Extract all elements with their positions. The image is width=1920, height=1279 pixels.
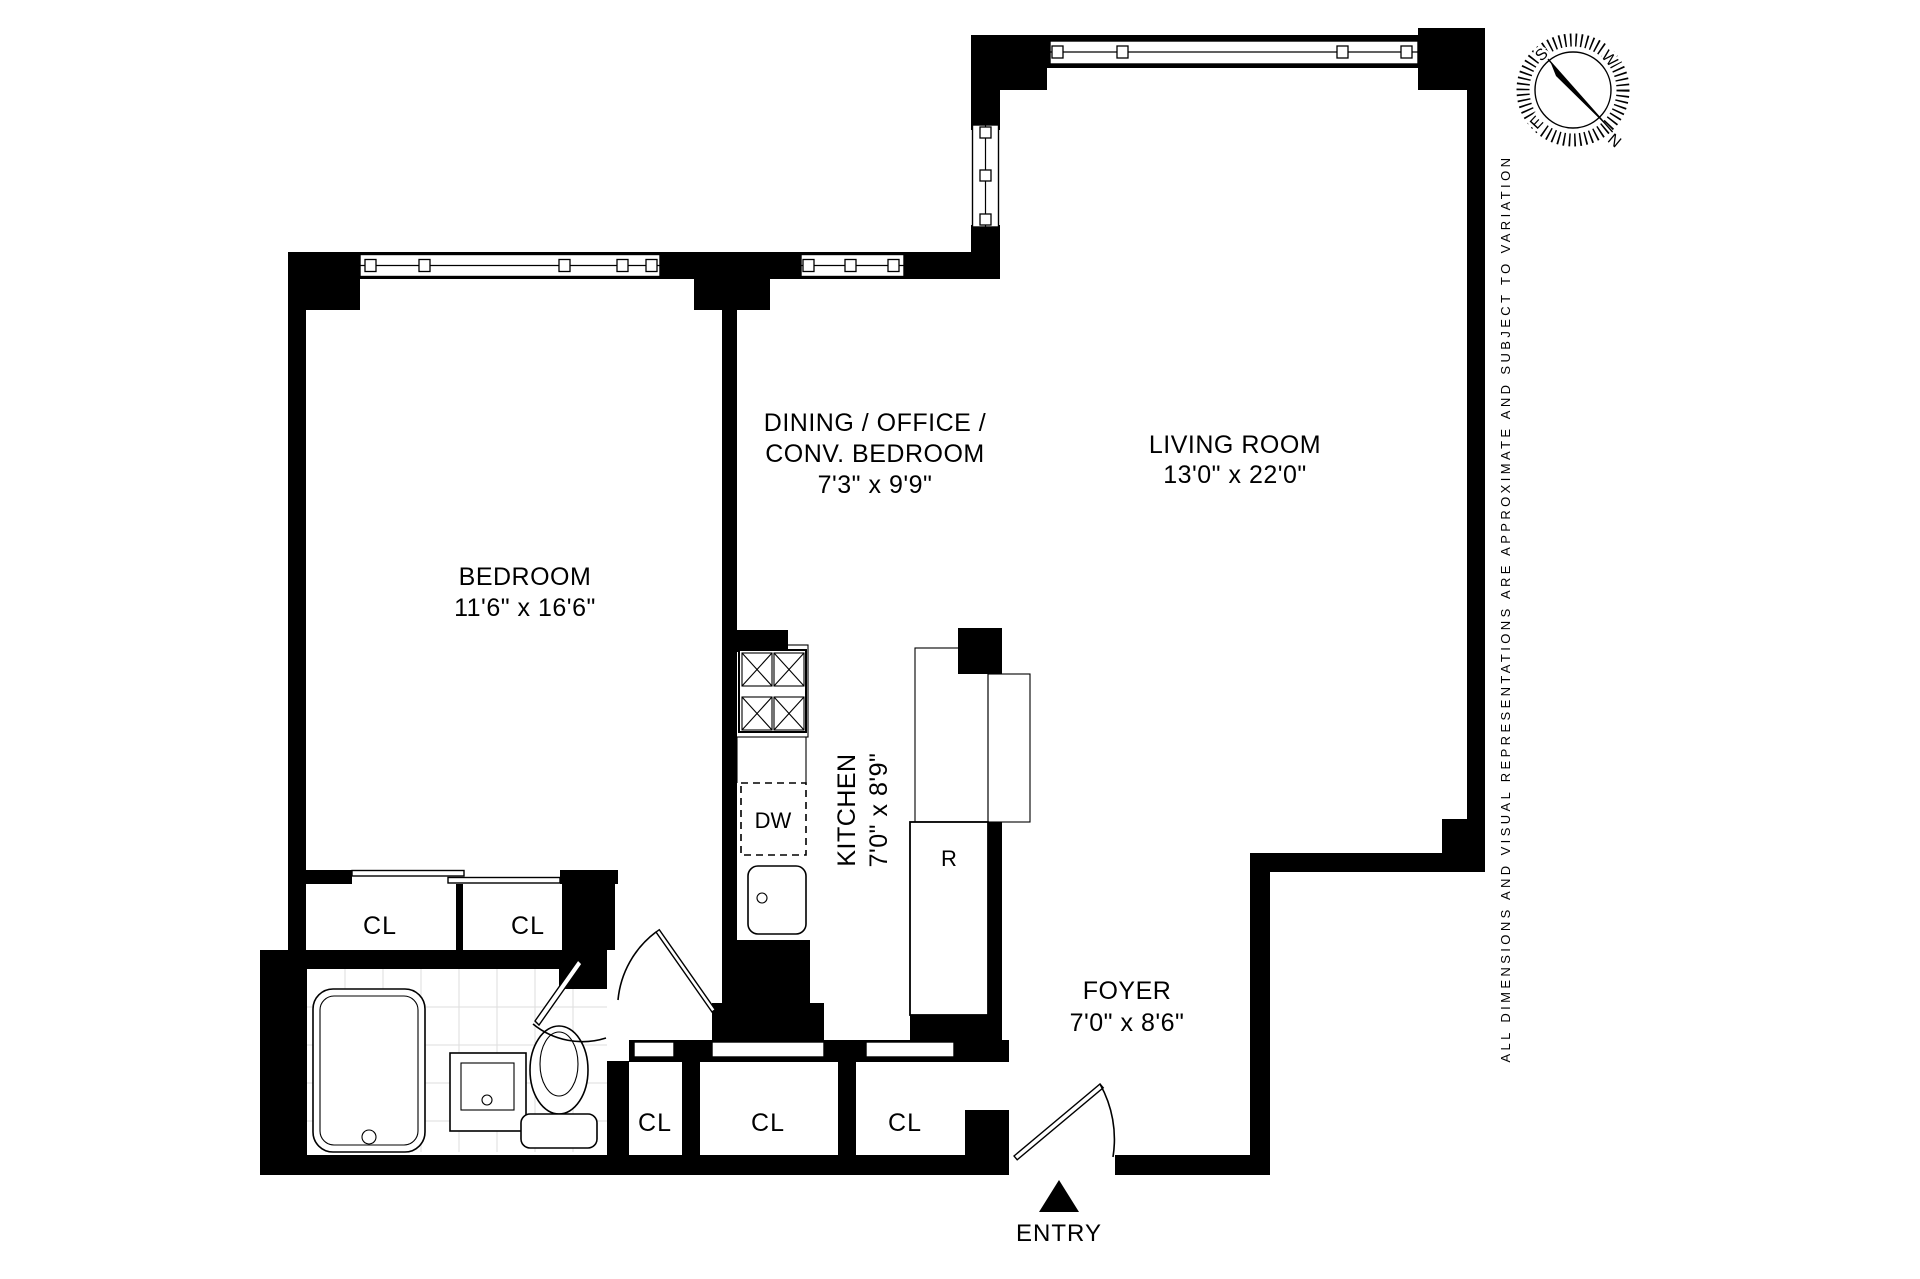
closet-door-slab bbox=[712, 1042, 824, 1057]
closet-door-slab bbox=[866, 1042, 954, 1057]
svg-text:11'6" x 16'6": 11'6" x 16'6" bbox=[454, 594, 596, 622]
closet-label: CL bbox=[511, 912, 545, 940]
svg-text:DINING / OFFICE /: DINING / OFFICE / bbox=[764, 409, 986, 437]
svg-text:13'0" x 22'0": 13'0" x 22'0" bbox=[1163, 461, 1307, 489]
closet-label: CL bbox=[638, 1109, 672, 1137]
living-room-window bbox=[1050, 41, 1418, 64]
svg-text:7'0" x 8'9": 7'0" x 8'9" bbox=[865, 753, 893, 868]
dishwasher-label: DW bbox=[755, 808, 792, 833]
svg-text:CONV. BEDROOM: CONV. BEDROOM bbox=[765, 440, 985, 468]
svg-text:KITCHEN: KITCHEN bbox=[833, 753, 861, 866]
stove bbox=[735, 645, 808, 737]
floor-plan: DW R bbox=[0, 0, 1920, 1279]
closet-label: CL bbox=[363, 912, 397, 940]
svg-text:LIVING ROOM: LIVING ROOM bbox=[1149, 431, 1321, 459]
refrigerator-label: R bbox=[941, 846, 957, 871]
entry-label: ENTRY bbox=[1016, 1220, 1102, 1247]
bathtub bbox=[313, 989, 425, 1152]
svg-text:FOYER: FOYER bbox=[1083, 977, 1172, 1005]
living-room-side-window bbox=[973, 125, 999, 227]
sliding-door-rail bbox=[352, 871, 464, 877]
dishwasher: DW bbox=[741, 783, 806, 855]
closet-label: CL bbox=[888, 1109, 922, 1137]
sliding-door-rail bbox=[448, 878, 560, 884]
kitchen-sink bbox=[748, 866, 806, 934]
svg-text:7'0" x 8'6": 7'0" x 8'6" bbox=[1070, 1009, 1185, 1037]
dining-window bbox=[801, 255, 904, 277]
closet-door-slab bbox=[634, 1042, 674, 1057]
svg-text:BEDROOM: BEDROOM bbox=[459, 563, 592, 591]
closet-label: CL bbox=[751, 1109, 785, 1137]
svg-text:7'3" x 9'9": 7'3" x 9'9" bbox=[818, 471, 933, 499]
bedroom-window bbox=[360, 255, 660, 277]
bathroom-sink bbox=[450, 1053, 526, 1131]
refrigerator: R bbox=[910, 822, 988, 1015]
